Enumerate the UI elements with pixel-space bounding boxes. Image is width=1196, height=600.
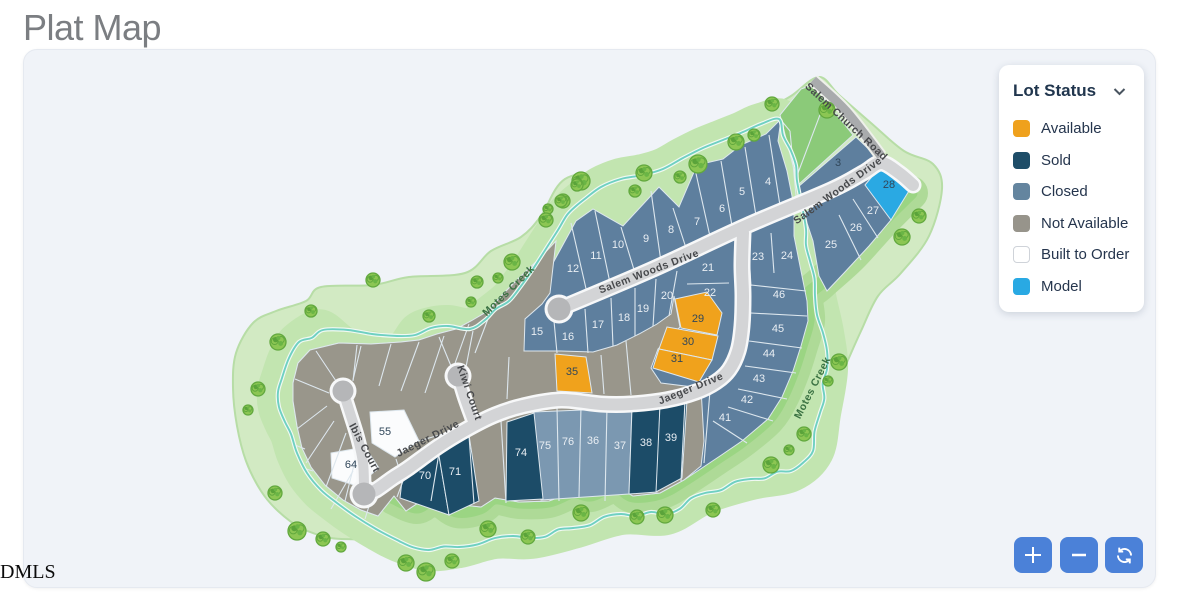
svg-text:55: 55 xyxy=(379,426,391,438)
svg-text:15: 15 xyxy=(531,326,543,338)
svg-text:30: 30 xyxy=(682,336,694,348)
svg-text:27: 27 xyxy=(867,205,879,217)
svg-text:16: 16 xyxy=(562,331,574,343)
svg-text:74: 74 xyxy=(515,447,527,459)
svg-text:12: 12 xyxy=(567,263,579,275)
svg-text:43: 43 xyxy=(753,373,765,385)
svg-text:64: 64 xyxy=(345,459,357,471)
svg-text:10: 10 xyxy=(612,239,624,251)
svg-text:5: 5 xyxy=(739,186,745,198)
svg-text:29: 29 xyxy=(692,313,704,325)
svg-text:46: 46 xyxy=(773,289,785,301)
svg-text:70: 70 xyxy=(419,470,431,482)
svg-text:28: 28 xyxy=(883,179,895,191)
svg-text:31: 31 xyxy=(671,353,683,365)
svg-text:35: 35 xyxy=(566,366,578,378)
svg-text:37: 37 xyxy=(614,440,626,452)
svg-text:44: 44 xyxy=(763,348,775,360)
svg-text:18: 18 xyxy=(618,312,630,324)
svg-text:3: 3 xyxy=(835,157,841,169)
svg-text:8: 8 xyxy=(668,224,674,236)
svg-text:20: 20 xyxy=(661,290,673,302)
svg-text:36: 36 xyxy=(587,435,599,447)
svg-text:26: 26 xyxy=(850,222,862,234)
svg-text:4: 4 xyxy=(765,176,771,188)
svg-text:19: 19 xyxy=(637,303,649,315)
svg-text:22: 22 xyxy=(704,287,716,299)
svg-text:45: 45 xyxy=(772,323,784,335)
svg-text:9: 9 xyxy=(643,233,649,245)
svg-text:21: 21 xyxy=(702,262,714,274)
svg-text:76: 76 xyxy=(562,436,574,448)
svg-text:42: 42 xyxy=(741,394,753,406)
svg-text:6: 6 xyxy=(719,203,725,215)
svg-text:75: 75 xyxy=(539,440,551,452)
svg-text:25: 25 xyxy=(825,239,837,251)
svg-text:41: 41 xyxy=(719,412,731,424)
svg-text:38: 38 xyxy=(640,437,652,449)
svg-text:17: 17 xyxy=(592,319,604,331)
svg-text:39: 39 xyxy=(665,432,677,444)
svg-text:24: 24 xyxy=(781,250,793,262)
svg-text:71: 71 xyxy=(449,466,461,478)
svg-text:23: 23 xyxy=(752,251,764,263)
svg-text:11: 11 xyxy=(590,250,601,262)
svg-text:7: 7 xyxy=(694,216,700,228)
